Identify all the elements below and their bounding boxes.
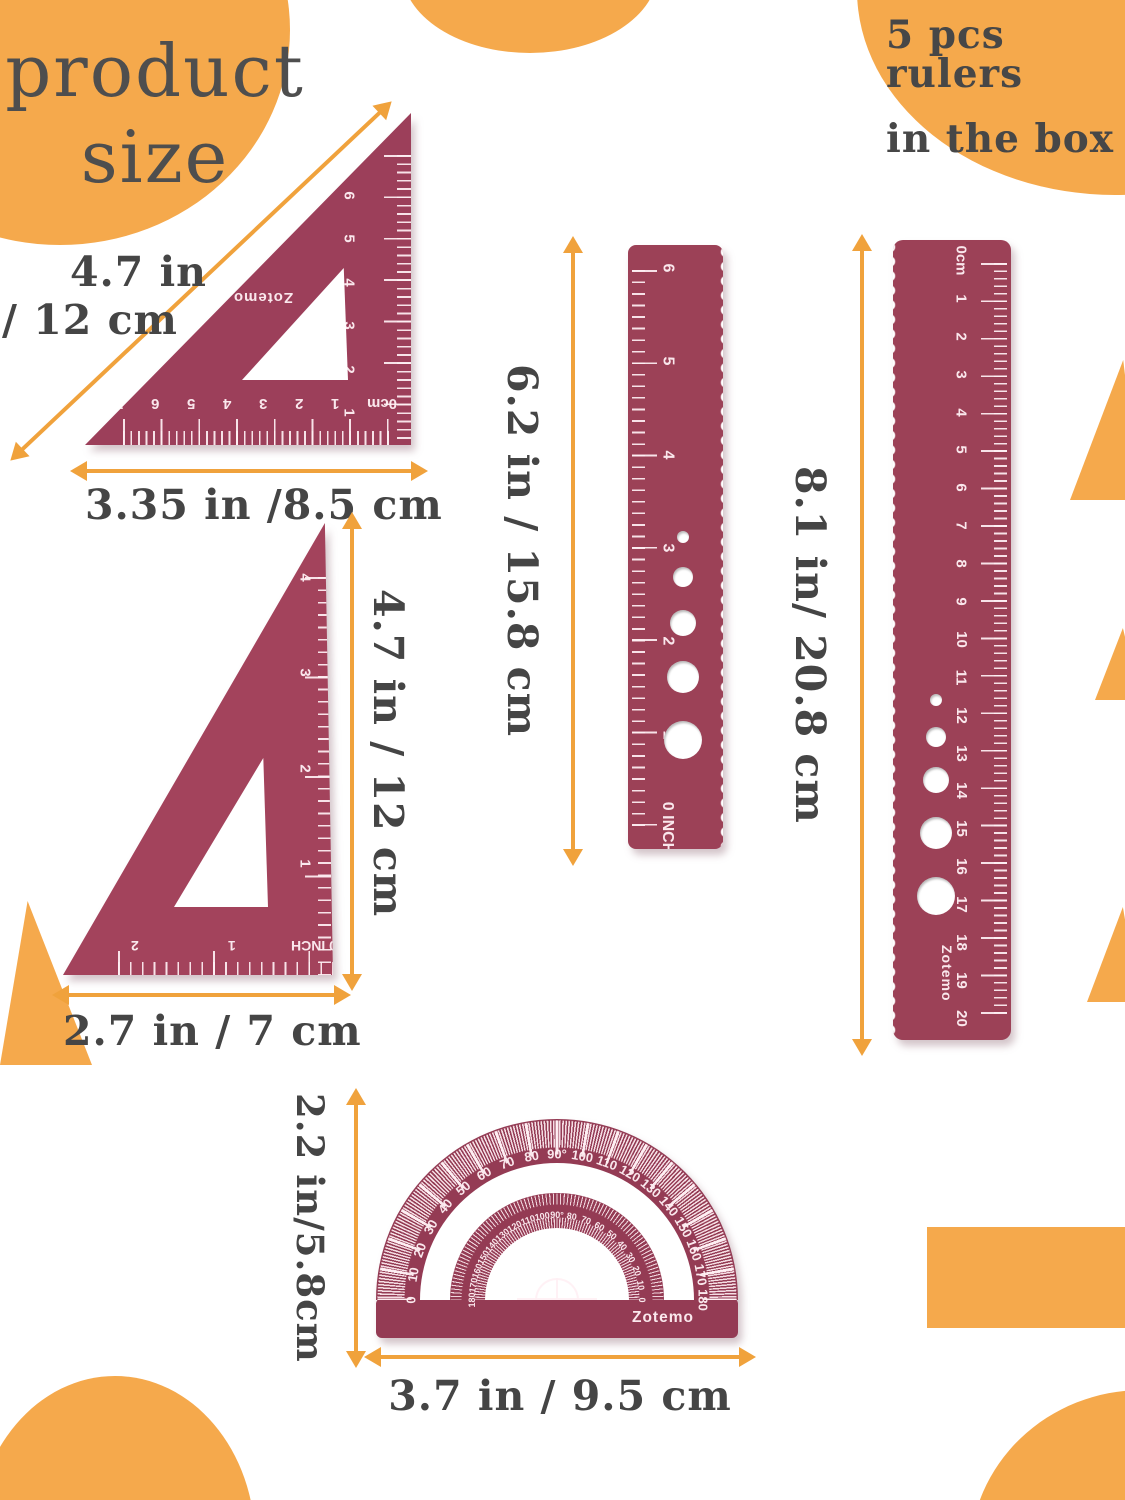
product-size-infographic: product size 5 pcs rulers in the box 765…	[0, 0, 1125, 1500]
scale-number: 15	[953, 821, 970, 838]
triangle-cutout	[174, 758, 268, 907]
scale-number: 2	[658, 637, 676, 646]
side-scale-numbers: 4321	[296, 569, 314, 872]
triangle-ruler-inch: 4321 210 INCH	[63, 523, 333, 975]
punch-hole	[923, 767, 949, 793]
punch-hole	[920, 817, 952, 849]
small-inch-ruler: 6543210 INCH	[628, 245, 723, 849]
punch-hole	[670, 610, 696, 636]
width-dimension-arrow	[380, 1355, 740, 1359]
orange-blob-top-middle	[402, 0, 658, 53]
box-contents-badge: 5 pcs rulers in the box	[886, 16, 1125, 185]
height-dimension-arrow	[354, 1104, 358, 1352]
scale-number: 4	[658, 450, 676, 459]
scale-number: 1	[953, 294, 970, 302]
brand-logo: Zotemo	[939, 945, 955, 1002]
scale-number: 10	[953, 631, 970, 648]
brand-logo: Zotemo	[215, 289, 311, 306]
protractor-height-label: 2.2 in/5.8cm	[288, 1100, 332, 1355]
scale-number: 0 INCH	[658, 802, 676, 849]
height-dimension-arrow	[350, 528, 354, 975]
punch-hole	[930, 694, 942, 706]
protractor: 0102030405060708090°10011012013014015016…	[376, 1118, 738, 1340]
long-cm-ruler-body: 0cm1234567891011121314151617181920 Zotem…	[893, 240, 1011, 1040]
triangle-ruler-inch-body: 4321 210 INCH	[63, 523, 333, 975]
small-ruler-length-label: 6.2 in / 15.8 cm	[498, 250, 546, 850]
scale-number: 3	[658, 544, 676, 553]
scale-number: 3	[953, 370, 970, 378]
length-dimension-arrow	[571, 252, 575, 850]
scale-number: 18	[953, 934, 970, 951]
tick-marks	[981, 263, 1007, 1015]
orange-triangle-right-2	[1095, 628, 1125, 700]
wavy-edge	[716, 245, 723, 849]
scale-number: 20	[953, 1010, 970, 1027]
scale-number: 6	[953, 484, 970, 492]
scale-number: 6	[341, 191, 358, 199]
scale-numbers: 0cm1234567891011121314151617181920	[951, 252, 971, 1027]
scale-number: 17	[953, 896, 970, 913]
triangle-cm-hypotenuse-label-line2: / 12 cm	[2, 296, 178, 344]
scale-number: 2	[953, 332, 970, 340]
scale-number: 8	[953, 559, 970, 567]
scale-number: 12	[953, 707, 970, 724]
orange-blob-bottom-right	[970, 1390, 1125, 1500]
scale-number: 16	[953, 858, 970, 875]
scale-number: 6	[658, 264, 676, 273]
scale-number: 5	[341, 234, 358, 242]
tick-marks	[118, 951, 336, 975]
scale-number: 9	[953, 597, 970, 605]
scale-number: 5	[658, 357, 676, 366]
small-inch-ruler-body: 6543210 INCH	[628, 245, 723, 849]
punch-hole	[917, 877, 955, 915]
scale-number: 13	[953, 745, 970, 762]
punch-hole	[667, 661, 699, 693]
scale-number: 5	[953, 446, 970, 454]
scale-number: 1	[228, 938, 236, 954]
tick-marks	[123, 419, 391, 445]
scale-number: 7	[115, 395, 123, 412]
scale-number: 19	[953, 972, 970, 989]
triangle-cutout	[242, 268, 348, 380]
orange-rect-bottom-right	[927, 1227, 1125, 1328]
scale-number: 0 INCH	[291, 938, 337, 954]
scale-number: 2	[297, 764, 314, 772]
scale-number: 4	[953, 408, 970, 416]
center-crosshair-baseline	[517, 1298, 597, 1300]
scale-number: 14	[953, 783, 970, 800]
wavy-edge	[893, 240, 900, 1040]
orange-blob-bottom-left	[0, 1376, 255, 1500]
width-dimension-arrow	[68, 993, 335, 997]
scale-number: 1	[331, 395, 339, 412]
punch-hole	[673, 567, 693, 587]
brand-logo: Zotemo	[632, 1309, 694, 1327]
tick-marks	[632, 270, 657, 826]
triangle-inch-width-label: 2.7 in / 7 cm	[63, 1007, 343, 1055]
scale-number: 2	[295, 395, 303, 412]
scale-number: 0cm	[953, 245, 970, 275]
badge-line2: in the box	[886, 120, 1125, 159]
scale-number: 2	[131, 938, 139, 954]
protractor-width-label: 3.7 in / 9.5 cm	[380, 1372, 740, 1420]
length-dimension-arrow	[860, 250, 864, 1040]
scale-number: 3	[259, 395, 267, 412]
width-dimension-arrow	[86, 469, 412, 473]
scale-number: 0cm	[367, 395, 397, 412]
scale-number: 5	[187, 395, 195, 412]
page-title-line1: product	[5, 28, 305, 114]
scale-number: 6	[151, 395, 159, 412]
scale-number: 7	[953, 522, 970, 530]
long-ruler-length-label: 8.1 in/ 20.8 cm	[786, 245, 834, 1045]
badge-line1: 5 pcs rulers	[886, 16, 1125, 94]
punch-hole	[664, 721, 702, 759]
punch-hole	[926, 727, 946, 747]
triangle-inch-height-label: 4.7 in / 12 cm	[364, 528, 412, 978]
scale-number: 1	[297, 859, 314, 867]
scale-number: 3	[297, 669, 314, 677]
punch-hole	[677, 531, 689, 543]
scale-number: 4	[223, 395, 231, 412]
orange-triangle-right-3	[1087, 907, 1125, 1002]
center-crosshair-vertical	[556, 1278, 558, 1299]
scale-number: 11	[952, 669, 969, 685]
bottom-scale-numbers: 76543210cm	[115, 395, 397, 412]
orange-triangle-right-1	[1070, 360, 1125, 500]
triangle-cm-hypotenuse-label-line1: 4.7 in	[70, 248, 207, 296]
long-cm-ruler: 0cm1234567891011121314151617181920 Zotem…	[893, 240, 1011, 1040]
triangle-cm-width-label: 3.35 in /8.5 cm	[85, 481, 415, 529]
scale-number: 4	[297, 573, 314, 581]
